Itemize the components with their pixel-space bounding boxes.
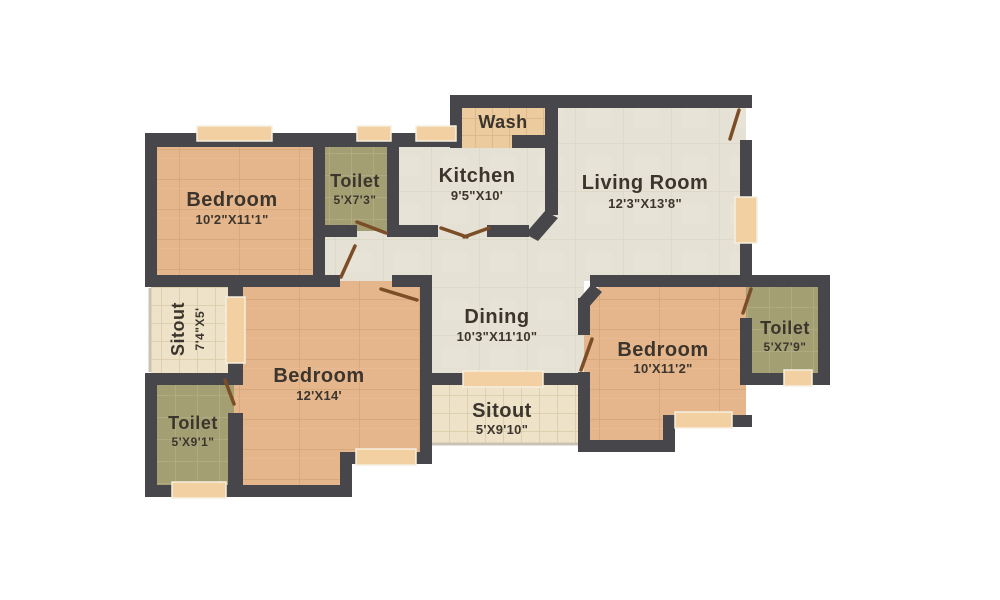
window — [356, 449, 416, 465]
wall — [818, 275, 830, 385]
wall — [590, 275, 830, 287]
sitout-left-name: Sitout — [168, 302, 188, 356]
toilet-right-dims: 5'X7'9" — [764, 340, 807, 354]
toilet-bottom-left-dims: 5'X9'1" — [172, 435, 215, 449]
toilet-right-name: Toilet — [760, 318, 810, 338]
wall — [450, 95, 752, 108]
wall — [578, 298, 590, 335]
dining-floor — [426, 231, 584, 379]
wall — [578, 440, 675, 452]
window — [735, 197, 757, 243]
window — [675, 412, 732, 428]
dining-dims: 10'3"X11'10" — [457, 329, 538, 344]
bedroom-right-dims: 10'X11'2" — [633, 361, 692, 376]
toilet-bottom-left-name: Toilet — [168, 413, 218, 433]
wall — [387, 133, 399, 237]
sliding-door-panel — [226, 297, 245, 363]
wall — [145, 373, 157, 497]
wall — [487, 225, 529, 237]
floor-plan-canvas: Bedroom 10'2"X11'1" Toilet 5'X7'3" Wash … — [0, 0, 1000, 600]
kitchen-dims: 9'5"X10' — [451, 188, 503, 203]
window — [416, 126, 456, 141]
wall — [145, 373, 243, 385]
wall — [313, 147, 325, 287]
bedroom-top-left-dims: 10'2"X11'1" — [195, 212, 268, 227]
window — [172, 482, 226, 498]
wall — [393, 225, 438, 237]
living-room-dims: 12'3"X13'8" — [608, 196, 682, 211]
hall-corridor-floor — [319, 231, 426, 281]
window — [463, 371, 543, 387]
bedroom-center-name: Bedroom — [273, 365, 364, 387]
living-room-name: Living Room — [582, 172, 709, 194]
wash-name: Wash — [478, 112, 527, 132]
dining-name: Dining — [464, 306, 529, 328]
sitout-bottom-name: Sitout — [472, 400, 532, 422]
wall — [228, 413, 243, 497]
bedroom-top-left-name: Bedroom — [186, 189, 277, 211]
bedroom-right-name: Bedroom — [617, 339, 708, 361]
wall — [145, 133, 157, 287]
kitchen-name: Kitchen — [439, 165, 516, 187]
window — [784, 370, 812, 386]
toilet-top-dims: 5'X7'3" — [334, 193, 377, 207]
wall — [545, 95, 558, 215]
floor-plan-drawing: Bedroom 10'2"X11'1" Toilet 5'X7'3" Wash … — [0, 0, 1000, 600]
window — [197, 126, 272, 141]
wall — [145, 133, 462, 147]
bedroom-center-dims: 12'X14' — [296, 388, 342, 403]
wall — [740, 318, 752, 373]
window — [357, 126, 391, 141]
toilet-top-name: Toilet — [330, 171, 380, 191]
sitout-bottom-dims: 5'X9'10" — [476, 422, 528, 437]
wall — [420, 275, 432, 464]
sitout-left-dims: 7'4"X5' — [193, 308, 207, 351]
wall — [313, 225, 357, 237]
